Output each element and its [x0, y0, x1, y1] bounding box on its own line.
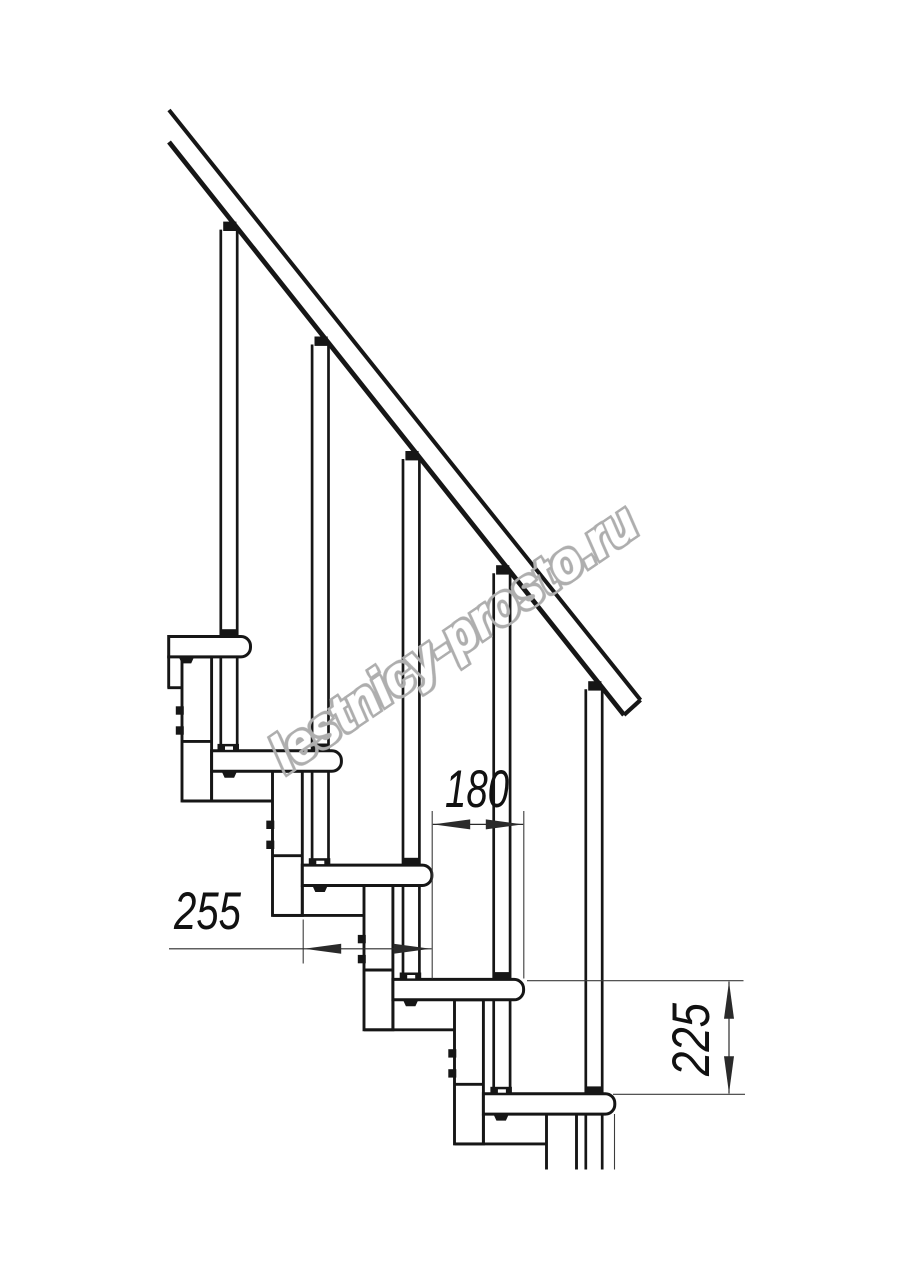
svg-text:225: 225: [662, 1003, 721, 1077]
svg-text:255: 255: [173, 882, 241, 941]
svg-text:180: 180: [445, 760, 509, 819]
